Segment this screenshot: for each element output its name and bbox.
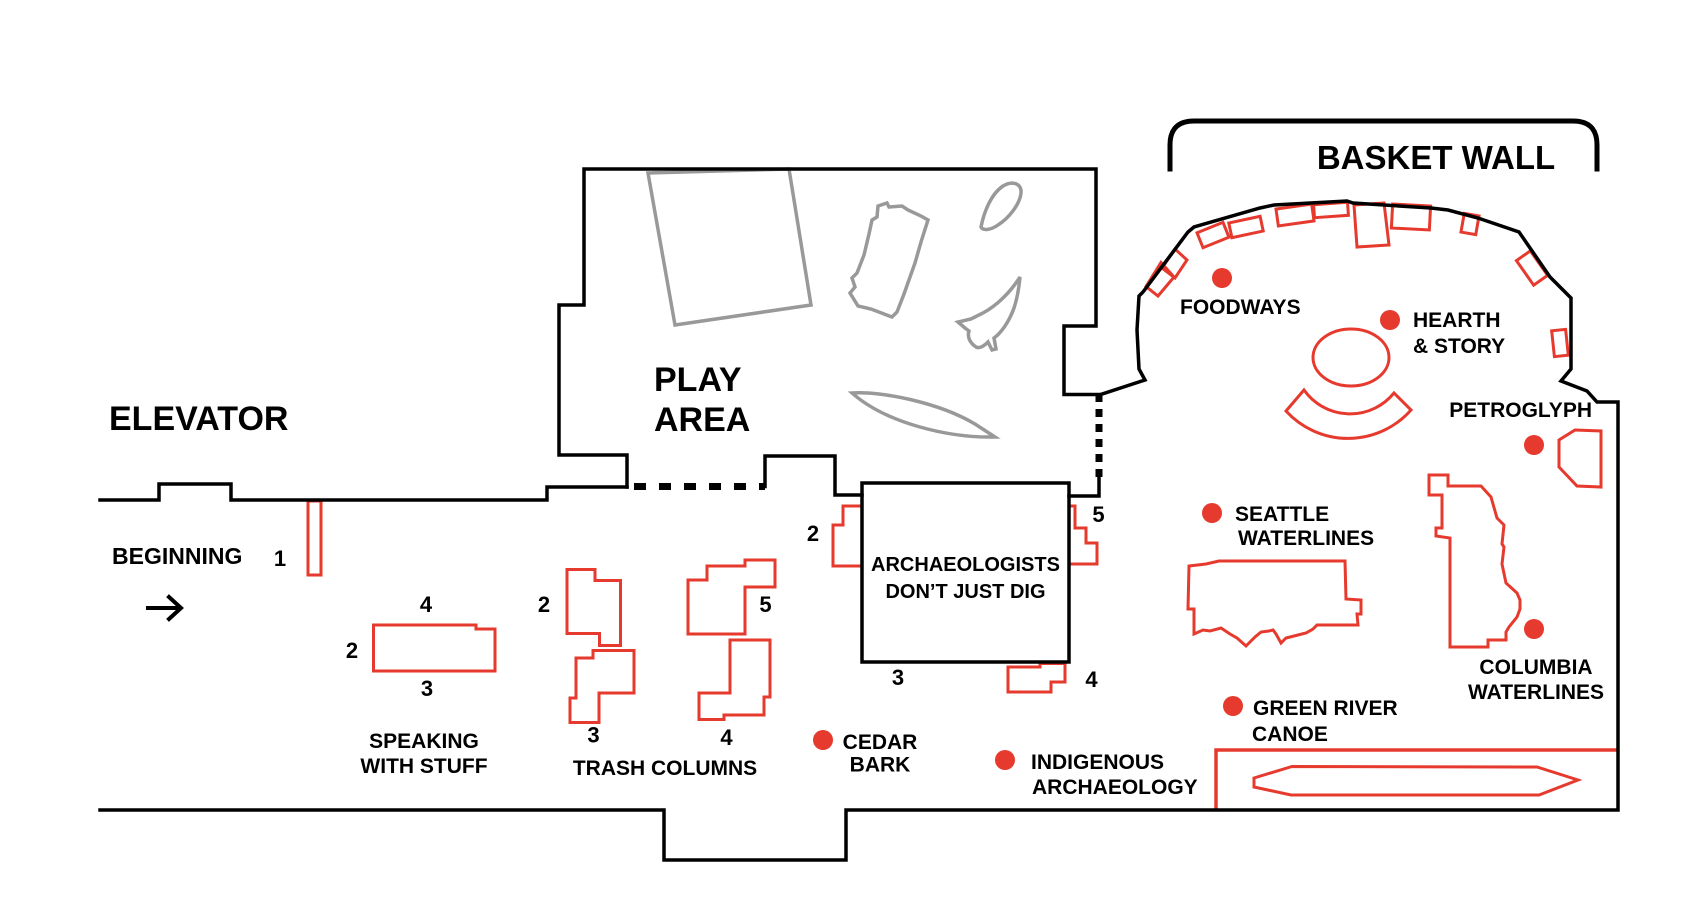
svg-text:HEARTH: HEARTH — [1413, 309, 1501, 332]
svg-text:WATERLINES: WATERLINES — [1468, 681, 1604, 704]
svg-text:ARCHAEOLOGISTS: ARCHAEOLOGISTS — [871, 554, 1060, 576]
svg-text:AREA: AREA — [654, 401, 750, 439]
svg-text:BEGINNING: BEGINNING — [112, 543, 242, 569]
svg-text:SPEAKING: SPEAKING — [369, 730, 479, 753]
svg-text:PLAY: PLAY — [654, 361, 742, 399]
svg-text:5: 5 — [759, 592, 771, 617]
svg-text:COLUMBIA: COLUMBIA — [1479, 656, 1592, 679]
svg-text:CANOE: CANOE — [1252, 723, 1328, 746]
svg-text:4: 4 — [720, 725, 733, 750]
svg-text:1: 1 — [274, 546, 286, 571]
svg-text:ARCHAEOLOGY: ARCHAEOLOGY — [1032, 776, 1198, 799]
svg-text:2: 2 — [346, 638, 358, 663]
svg-text:FOODWAYS: FOODWAYS — [1180, 296, 1301, 319]
svg-text:TRASH COLUMNS: TRASH COLUMNS — [573, 757, 757, 780]
svg-text:INDIGENOUS: INDIGENOUS — [1031, 751, 1164, 774]
svg-text:WITH STUFF: WITH STUFF — [360, 755, 487, 778]
svg-text:PETROGLYPH: PETROGLYPH — [1449, 399, 1592, 422]
svg-text:ELEVATOR: ELEVATOR — [109, 400, 288, 438]
svg-text:& STORY: & STORY — [1413, 335, 1505, 358]
svg-text:CEDAR: CEDAR — [843, 731, 918, 754]
svg-text:BARK: BARK — [850, 754, 911, 777]
svg-text:DON’T JUST DIG: DON’T JUST DIG — [885, 581, 1045, 603]
svg-text:2: 2 — [538, 592, 550, 617]
svg-text:4: 4 — [420, 592, 433, 617]
svg-text:GREEN RIVER: GREEN RIVER — [1253, 697, 1398, 720]
svg-text:WATERLINES: WATERLINES — [1238, 527, 1374, 550]
svg-text:BASKET WALL: BASKET WALL — [1317, 139, 1555, 176]
svg-text:SEATTLE: SEATTLE — [1235, 503, 1329, 526]
svg-text:3: 3 — [587, 723, 599, 748]
svg-text:4: 4 — [1085, 667, 1098, 692]
svg-text:3: 3 — [421, 676, 433, 701]
svg-text:5: 5 — [1092, 502, 1104, 527]
svg-text:2: 2 — [807, 521, 819, 546]
svg-text:3: 3 — [892, 665, 904, 690]
